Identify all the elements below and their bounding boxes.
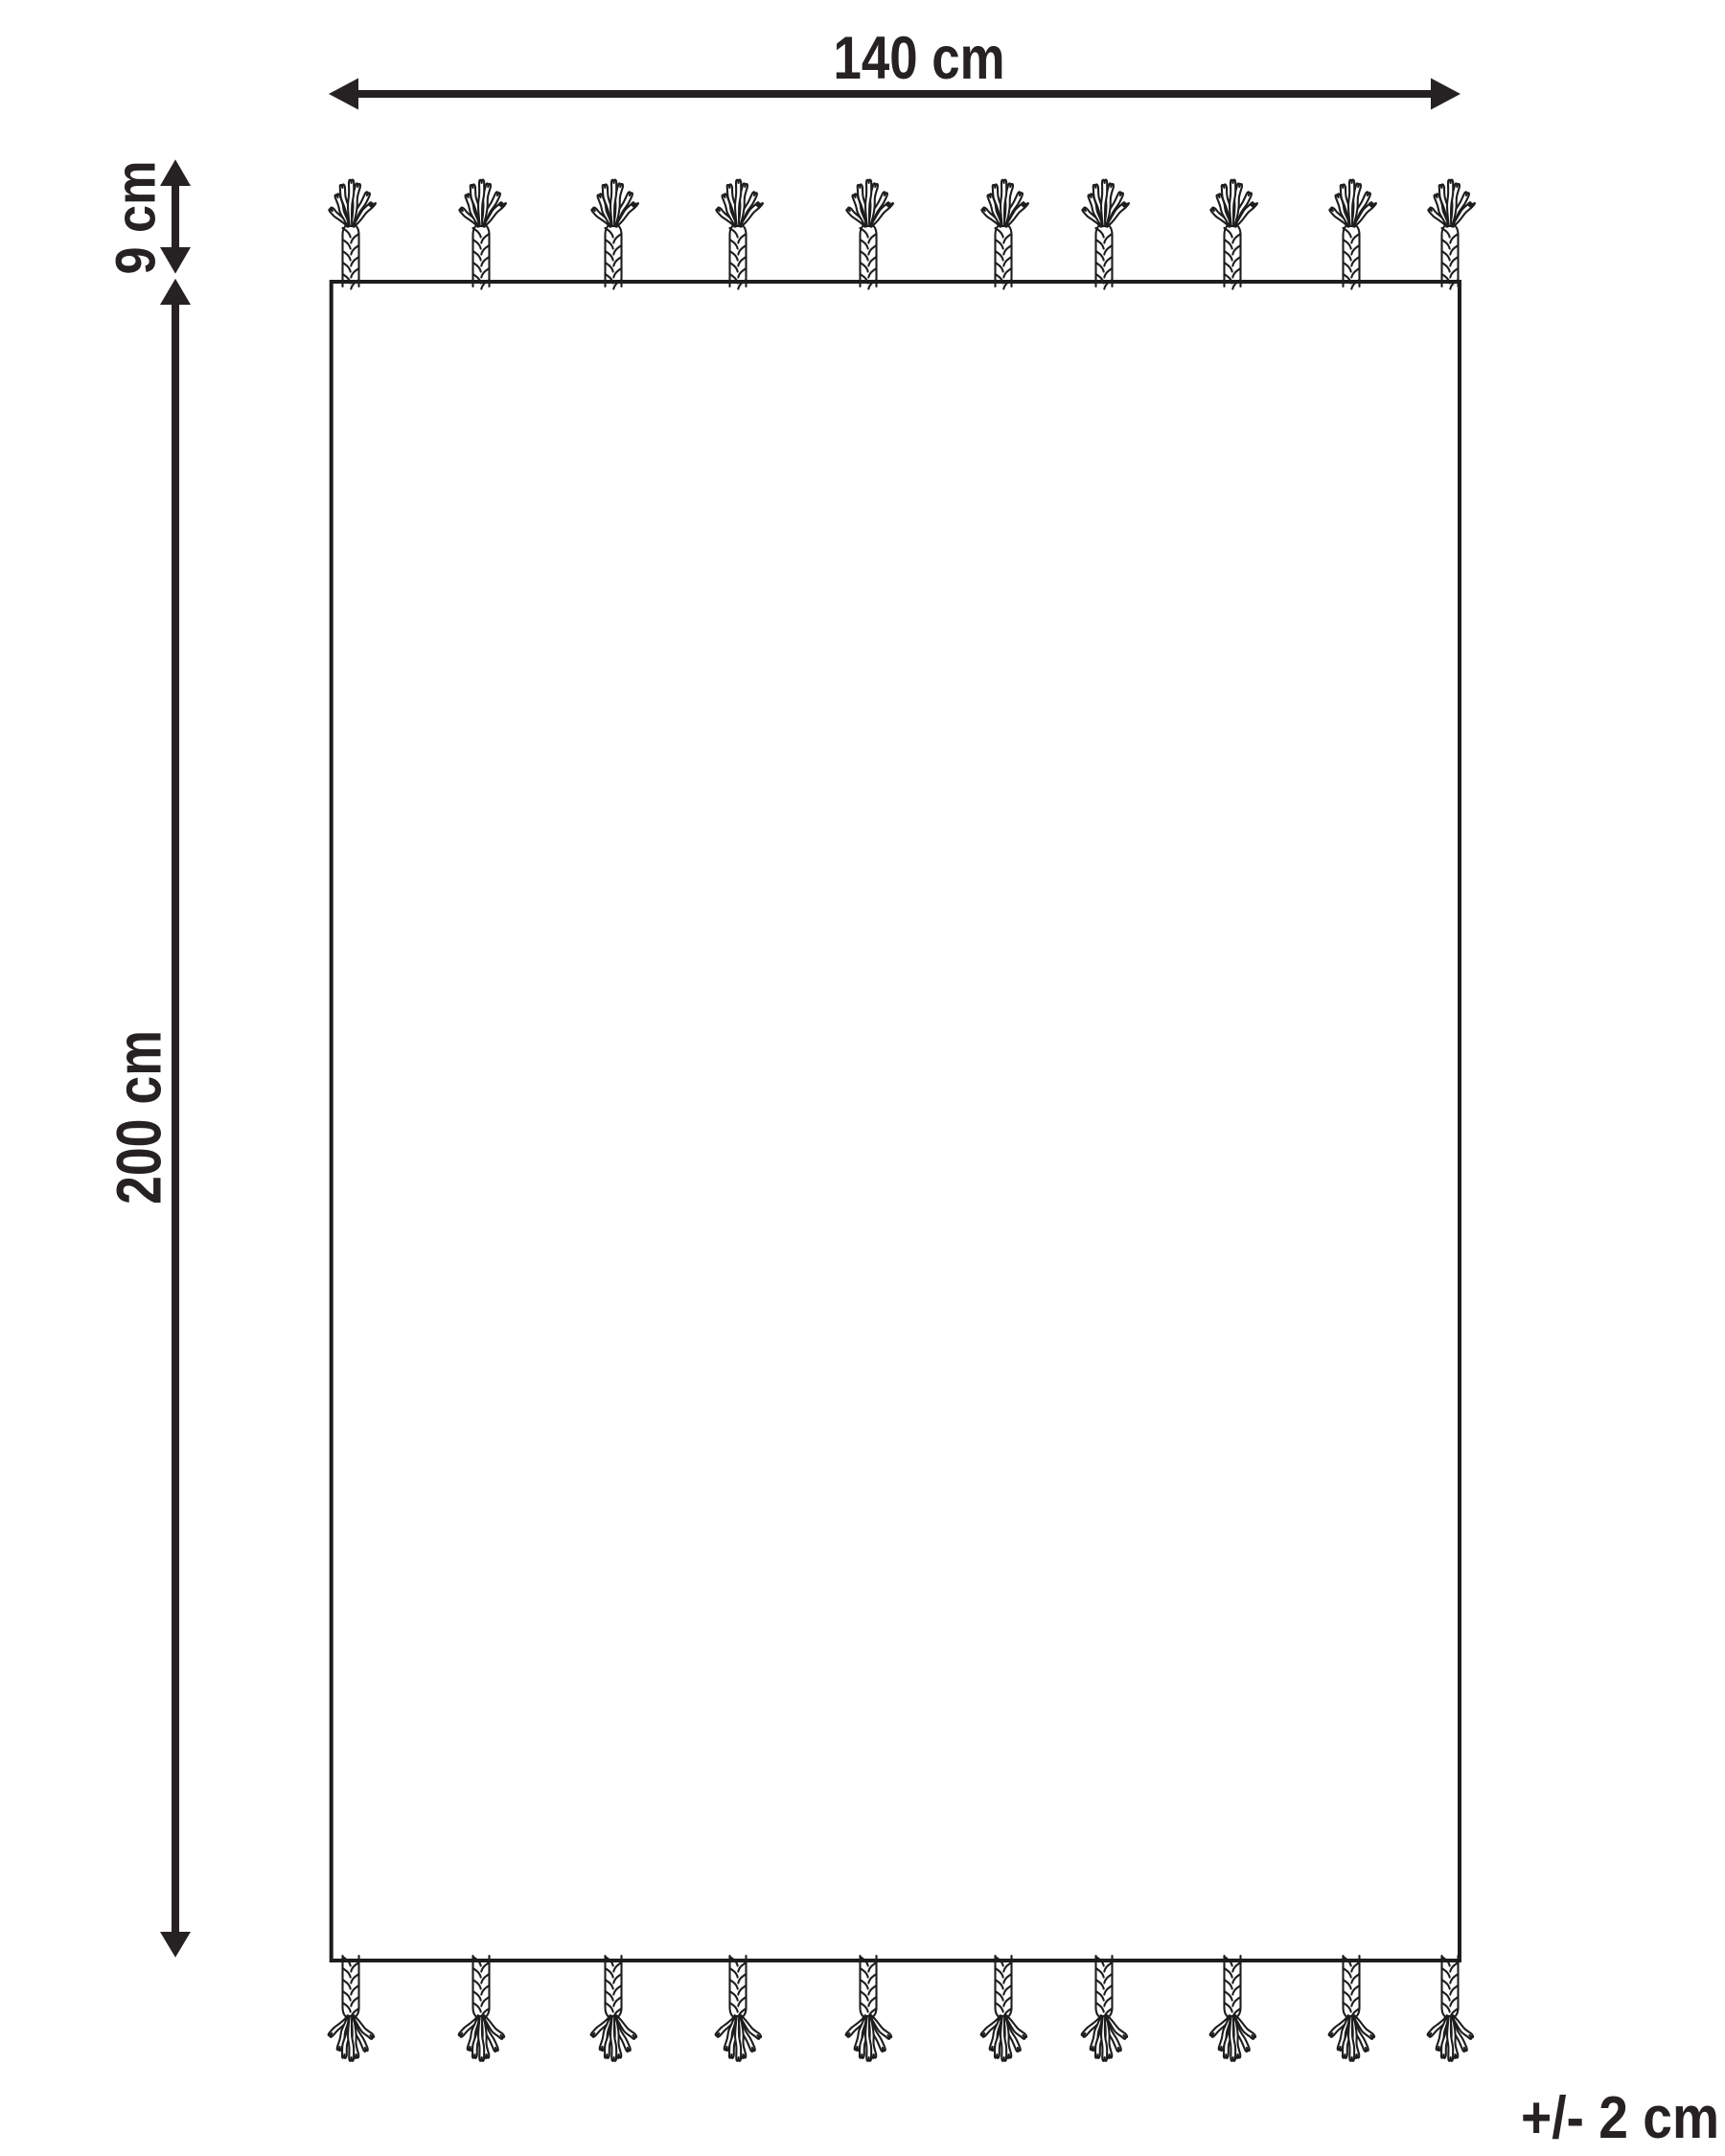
svg-text:200 cm: 200 cm — [103, 1030, 174, 1204]
svg-text:+/- 2 cm: +/- 2 cm — [1521, 2085, 1719, 2151]
svg-text:140 cm: 140 cm — [834, 25, 1005, 92]
svg-text:9 cm: 9 cm — [105, 161, 168, 275]
